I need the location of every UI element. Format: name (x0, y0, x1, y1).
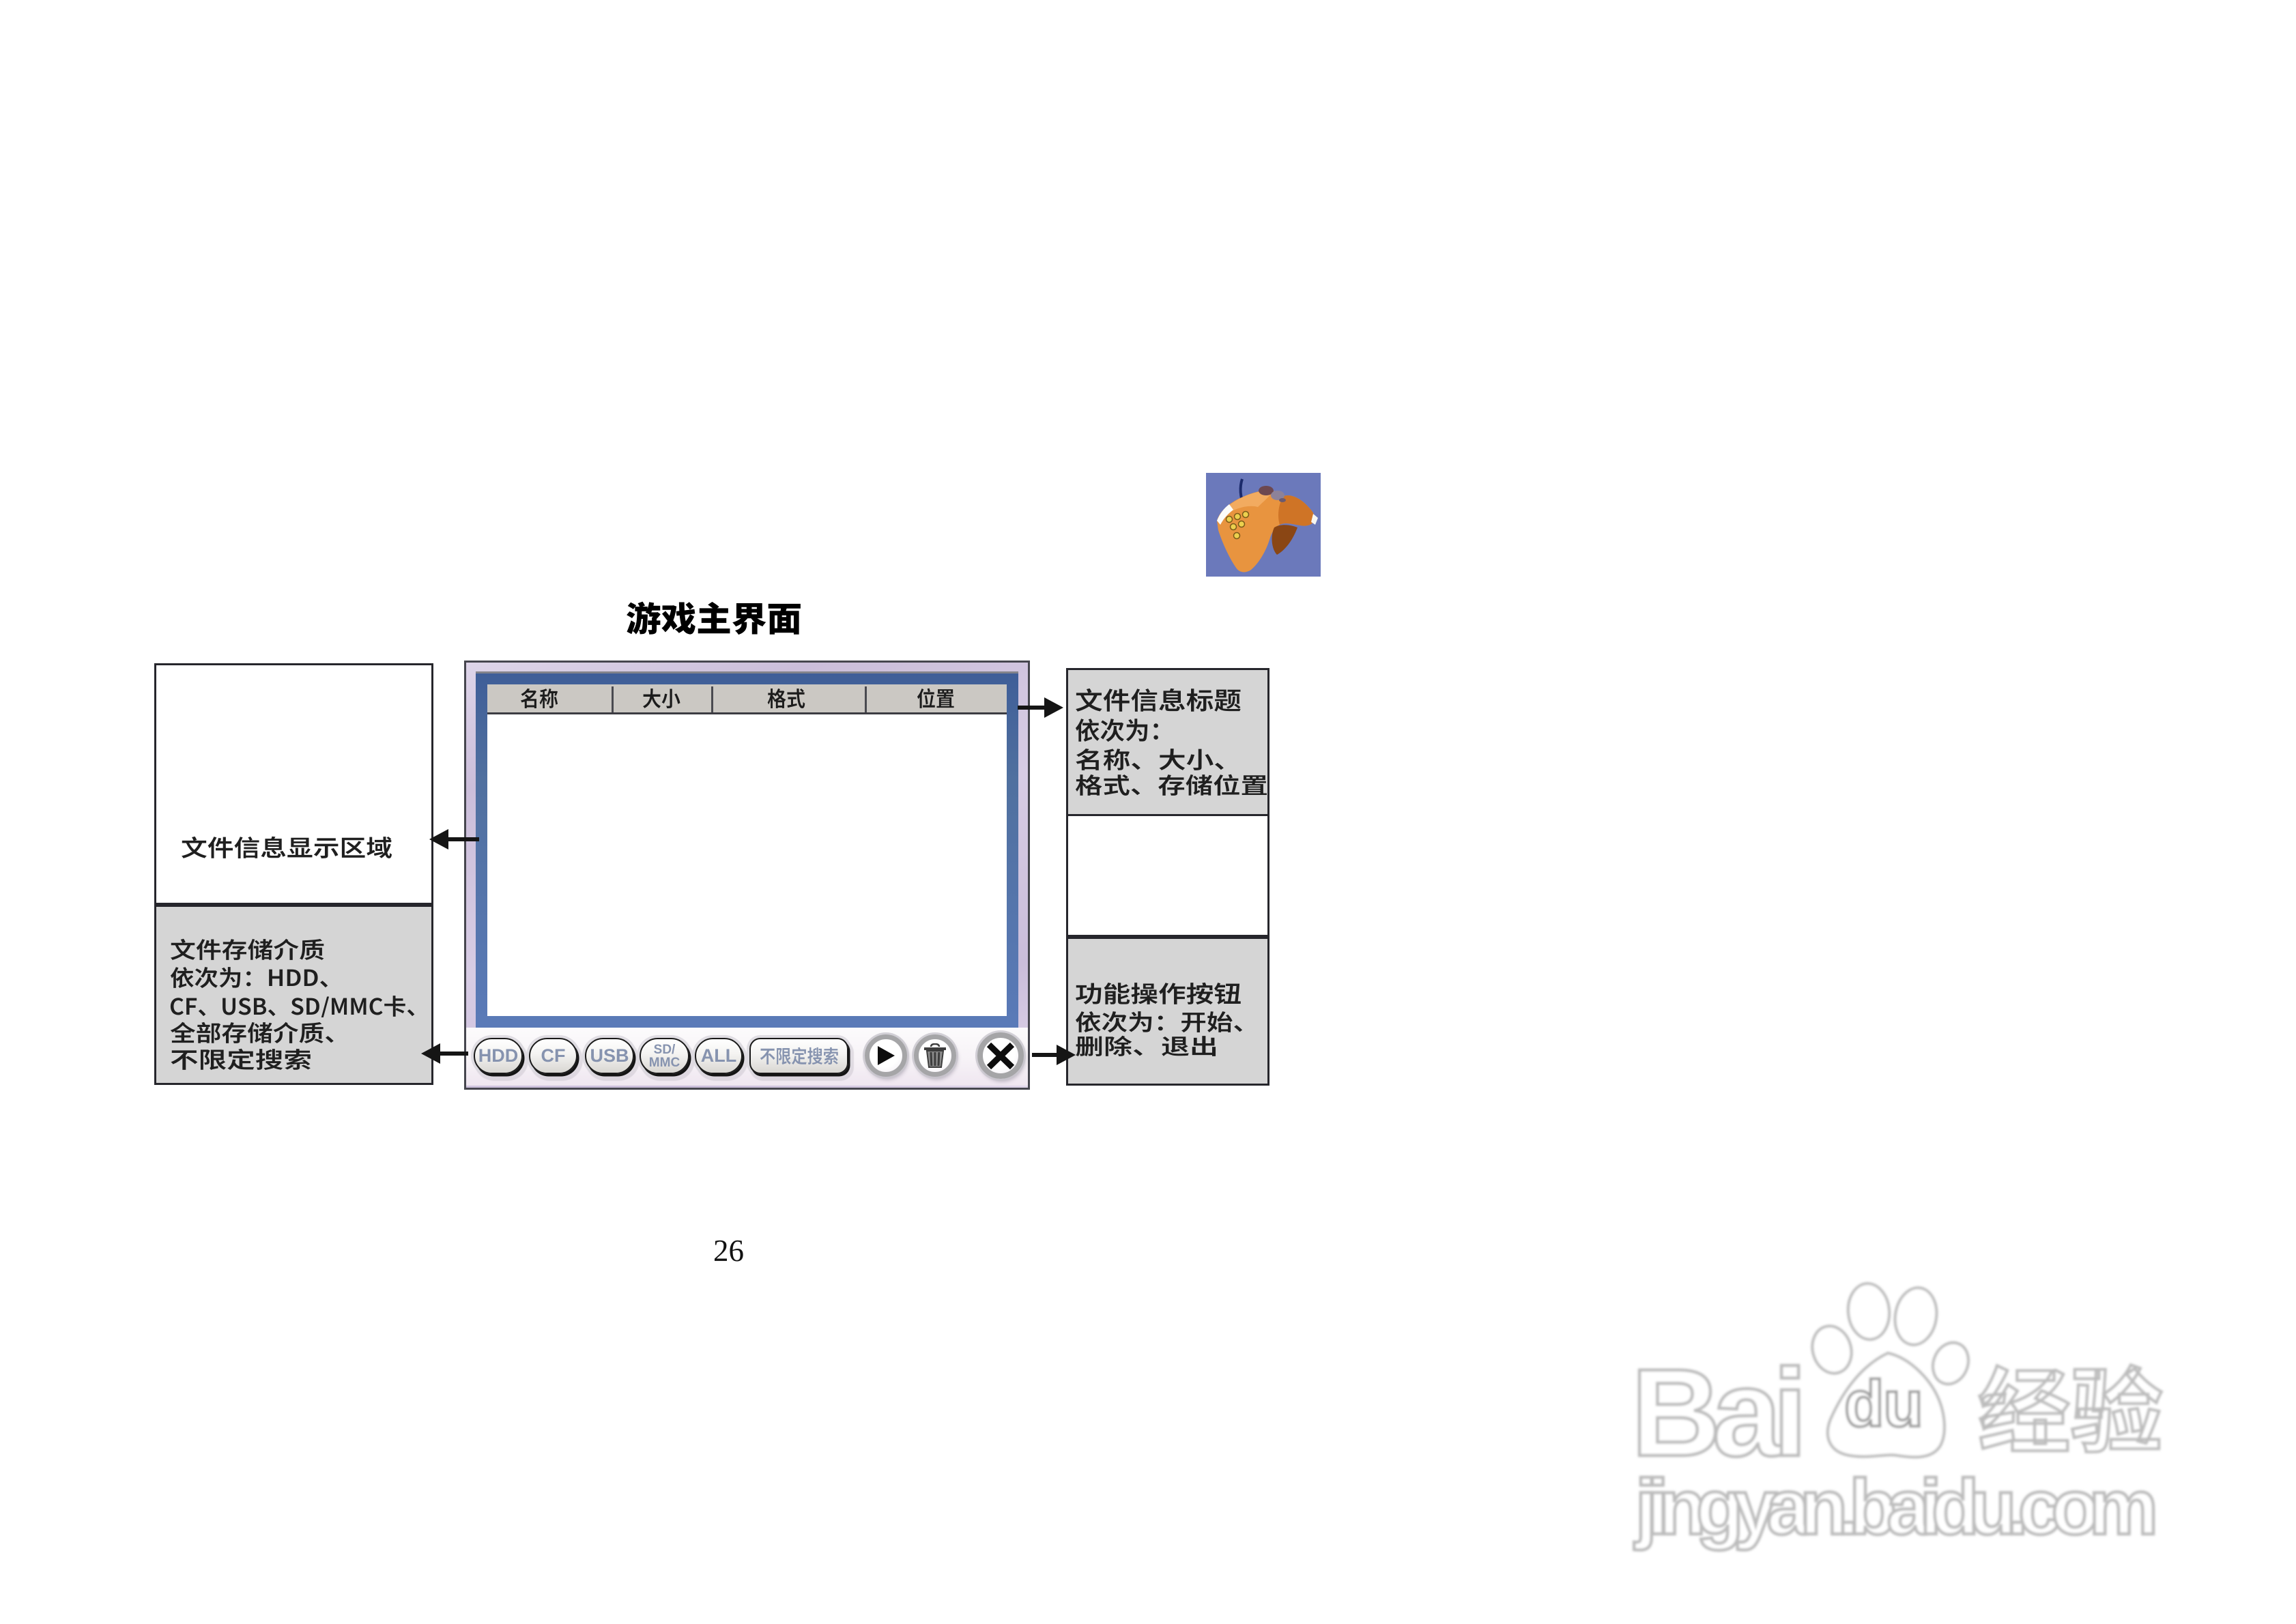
svg-text:du: du (1844, 1367, 1923, 1440)
svg-text:jingyan.baidu.com: jingyan.baidu.com (1634, 1464, 2158, 1551)
svg-text:Bai: Bai (1631, 1343, 1807, 1482)
